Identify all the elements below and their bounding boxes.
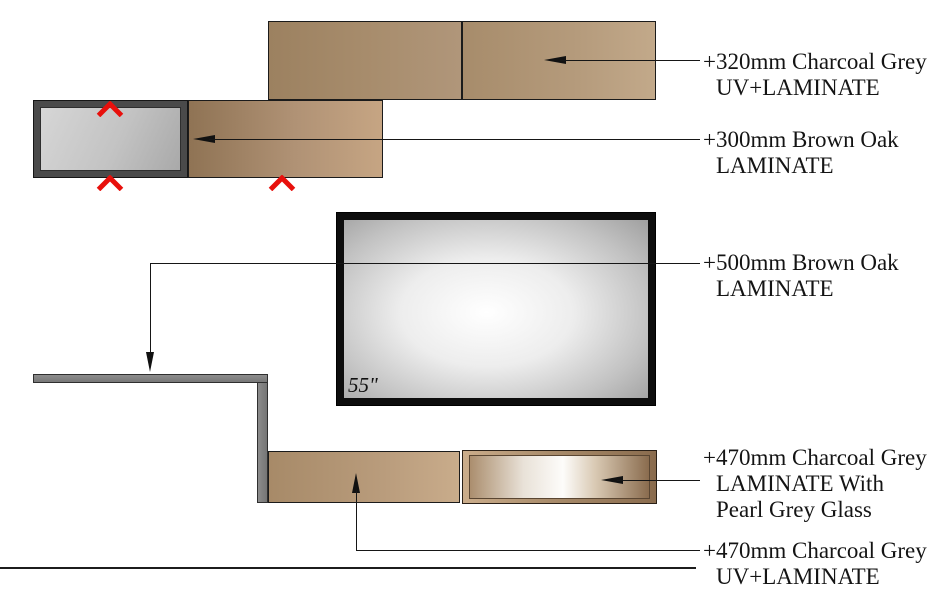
annotation-line: +300mm Brown Oak xyxy=(703,127,899,153)
leader-line-320 xyxy=(560,60,700,62)
base-cabinet-470-laminate-panel xyxy=(268,451,460,503)
annotation-470-uv: +470mm Charcoal Grey UV+LAMINATE xyxy=(703,538,927,590)
annotation-line: +500mm Brown Oak xyxy=(703,250,899,276)
tv-screen xyxy=(344,220,648,398)
red-chevron-marker-icon xyxy=(268,175,296,191)
elevation-drawing: 55" +320mm Charcoal Grey UV+LAMINATE +30… xyxy=(0,0,943,594)
annotation-line: LAMINATE With xyxy=(703,471,927,497)
red-chevron-marker-icon xyxy=(96,175,124,191)
annotation-500: +500mm Brown Oak LAMINATE xyxy=(703,250,899,302)
leader-line-470-uv-horizontal xyxy=(356,550,700,552)
leader-line-500-vertical xyxy=(150,263,152,352)
annotation-470-glass: +470mm Charcoal Grey LAMINATE With Pearl… xyxy=(703,445,927,523)
leader-line-470-glass xyxy=(617,480,700,482)
wall-cabinet-320-left-panel xyxy=(268,21,462,100)
annotation-line: LAMINATE xyxy=(703,153,899,179)
leader-line-300 xyxy=(209,139,700,141)
annotation-300: +300mm Brown Oak LAMINATE xyxy=(703,127,899,179)
annotation-line: +470mm Charcoal Grey xyxy=(703,538,927,564)
leader-line-500-horizontal xyxy=(150,263,700,265)
annotation-line: UV+LAMINATE xyxy=(703,75,927,101)
leader-line-470-uv-vertical xyxy=(356,490,358,551)
annotation-line: +470mm Charcoal Grey xyxy=(703,445,927,471)
red-chevron-marker-icon xyxy=(96,101,124,117)
tv-size-label: 55" xyxy=(348,373,378,398)
base-cabinet-470-glass-door xyxy=(462,450,657,504)
annotation-line: +320mm Charcoal Grey xyxy=(703,49,927,75)
arrowhead-down-icon xyxy=(146,352,154,372)
annotation-line: LAMINATE xyxy=(703,276,899,302)
tv-55-inch: 55" xyxy=(336,212,656,406)
annotation-line: UV+LAMINATE xyxy=(703,564,927,590)
annotation-320: +320mm Charcoal Grey UV+LAMINATE xyxy=(703,49,927,101)
wall-shelf-horizontal xyxy=(33,374,268,383)
wall-shelf-vertical-support xyxy=(257,382,268,503)
annotation-line: Pearl Grey Glass xyxy=(703,497,927,523)
floor-line xyxy=(0,567,696,569)
